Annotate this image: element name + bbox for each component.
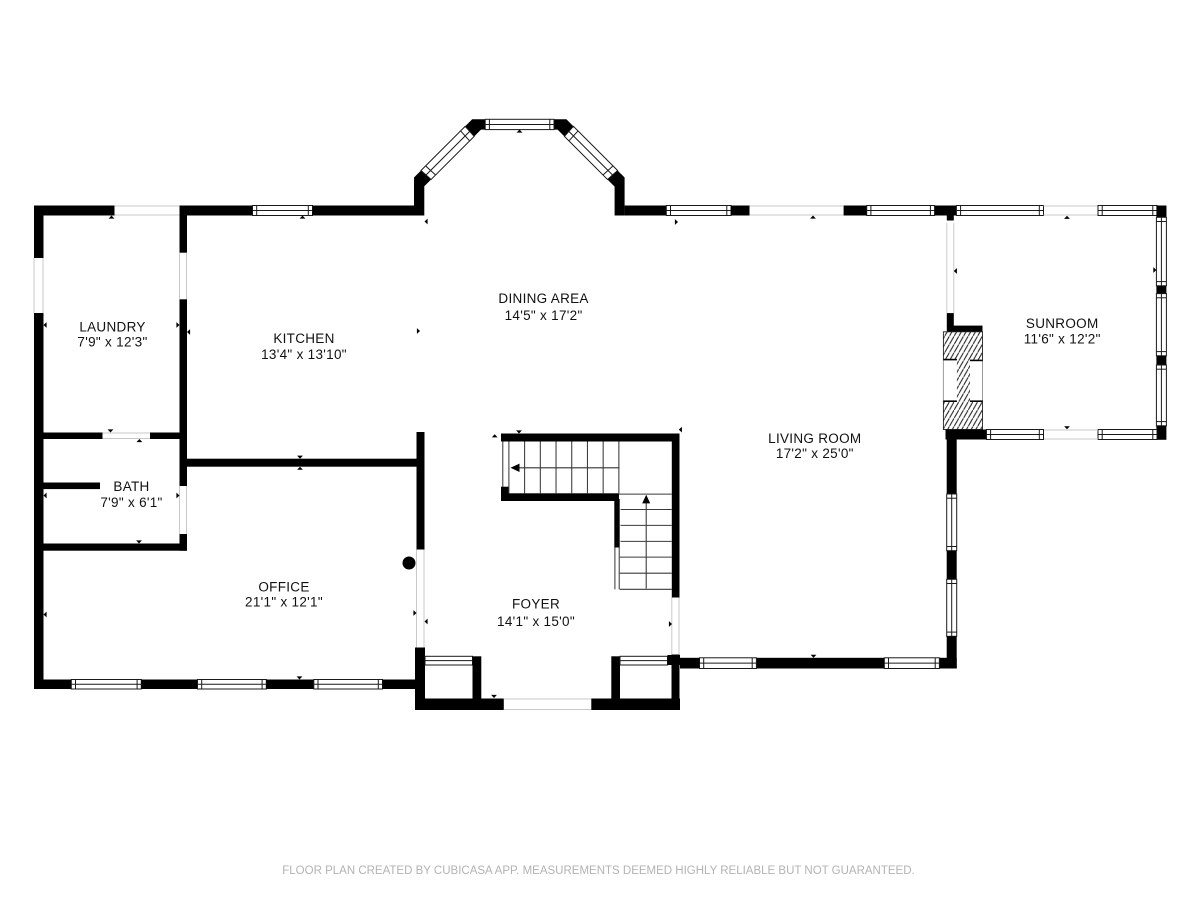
svg-text:LAUNDRY: LAUNDRY <box>79 319 145 334</box>
svg-text:DINING AREA: DINING AREA <box>498 291 588 306</box>
svg-text:11'6" x 12'2": 11'6" x 12'2" <box>1024 332 1101 347</box>
svg-text:SUNROOM: SUNROOM <box>1026 316 1099 331</box>
svg-text:FOYER: FOYER <box>512 597 560 612</box>
svg-text:14'5" x 17'2": 14'5" x 17'2" <box>505 308 583 323</box>
svg-text:21'1" x 12'1": 21'1" x 12'1" <box>245 595 323 610</box>
svg-text:13'4" x 13'10": 13'4" x 13'10" <box>261 347 347 362</box>
svg-text:17'2" x 25'0": 17'2" x 25'0" <box>776 446 854 461</box>
svg-text:KITCHEN: KITCHEN <box>273 331 334 346</box>
svg-text:14'1" x 15'0": 14'1" x 15'0" <box>497 614 575 629</box>
svg-text:7'9" x 6'1": 7'9" x 6'1" <box>100 495 162 510</box>
svg-text:7'9" x 12'3": 7'9" x 12'3" <box>77 335 147 350</box>
svg-text:BATH: BATH <box>113 479 149 494</box>
svg-text:LIVING ROOM: LIVING ROOM <box>768 431 861 446</box>
svg-text:FLOOR PLAN CREATED BY CUBICASA: FLOOR PLAN CREATED BY CUBICASA APP. MEAS… <box>282 865 914 877</box>
svg-text:OFFICE: OFFICE <box>258 580 309 595</box>
